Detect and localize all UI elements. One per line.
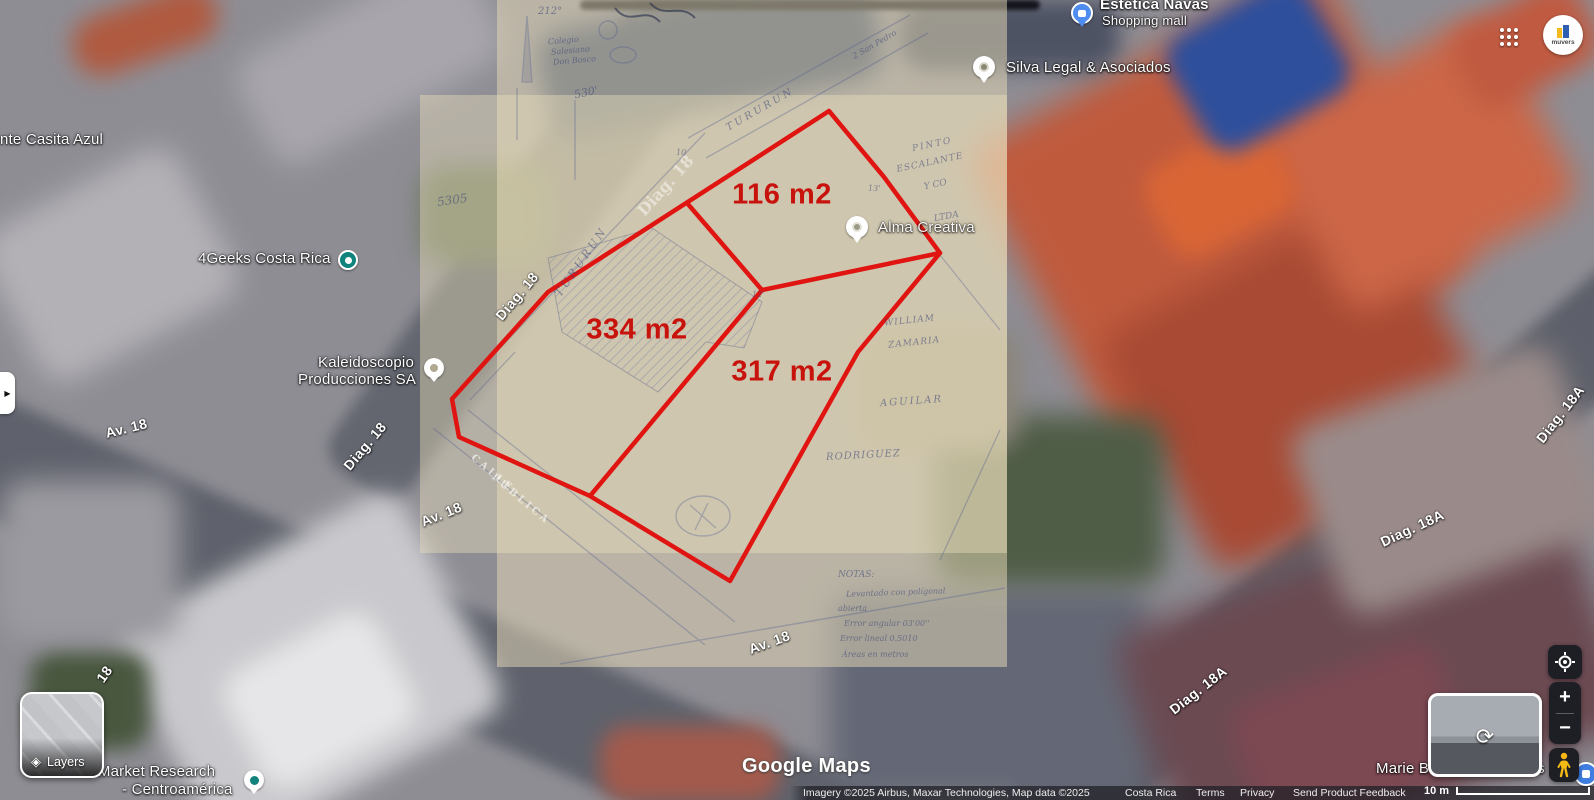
layers-icon: ◈: [31, 754, 41, 770]
place-label-estetica-navas[interactable]: Estética Navas: [1100, 0, 1209, 13]
google-maps-watermark: Google Maps: [742, 755, 871, 778]
alma-creativa-pin-icon[interactable]: [846, 216, 868, 238]
footer-link-privacy[interactable]: Privacy: [1240, 787, 1274, 799]
google-apps-grid-icon[interactable]: [1498, 26, 1520, 48]
google-maps-satellite-view: 116 m2 334 m2 317 m2 212° Colegio Salesi…: [0, 0, 1594, 800]
plan-note: 12': [752, 290, 764, 299]
place-label-producciones[interactable]: Producciones SA: [298, 371, 416, 388]
account-avatar[interactable]: muvers: [1543, 15, 1583, 55]
street-view-thumbnail[interactable]: ⟳: [1428, 693, 1542, 777]
zoom-out-button[interactable]: −: [1549, 714, 1581, 744]
pegman-icon: [1557, 752, 1571, 778]
kaleidoscopio-pin-icon[interactable]: [424, 358, 444, 378]
footer-link-region[interactable]: Costa Rica: [1125, 787, 1176, 799]
plan-note: 212°: [538, 6, 562, 17]
place-label-market-research[interactable]: o Market Research: [85, 763, 215, 780]
place-label-centroamerica[interactable]: - Centroamérica: [122, 781, 233, 798]
parcel-boundary-svg: [0, 0, 1594, 800]
plan-note: Áreas en metros: [842, 650, 908, 659]
footer-link-feedback[interactable]: Send Product Feedback: [1293, 787, 1406, 799]
place-label-alma-creativa[interactable]: Alma Creativa: [878, 219, 975, 236]
scale-label: 10 m: [1424, 785, 1449, 797]
zoom-in-button[interactable]: +: [1549, 683, 1581, 713]
place-label-casita-azul[interactable]: nte Casita Azul: [0, 131, 103, 148]
place-label-kaleidoscopio[interactable]: Kaleidoscopio: [318, 354, 414, 371]
avatar-label: muvers: [1551, 39, 1574, 46]
side-panel-expand-tab[interactable]: ▶: [0, 372, 15, 414]
place-label-silva-legal[interactable]: Silva Legal & Asociados: [1006, 59, 1171, 76]
place-sublabel-shopping-mall[interactable]: Shopping mall: [1102, 13, 1187, 28]
shopping-mall-pin-icon[interactable]: [1071, 2, 1093, 24]
market-research-pin-icon[interactable]: [244, 770, 264, 790]
silva-legal-pin-icon[interactable]: [973, 56, 995, 78]
my-location-icon: [1554, 651, 1576, 673]
parcel-area-label-116: 116 m2: [732, 179, 832, 212]
imagery-attribution: Imagery ©2025 Airbus, Maxar Technologies…: [803, 787, 1090, 799]
plan-note: 10: [676, 148, 686, 157]
pegman-button[interactable]: [1549, 748, 1579, 782]
chevron-right-icon: ▶: [4, 389, 10, 398]
muvers-logo-icon: [1555, 24, 1571, 38]
plan-note: 13': [868, 184, 880, 193]
layers-label: Layers: [47, 755, 85, 769]
plan-note: Error lineal 0.5010: [840, 634, 918, 643]
zoom-control: + −: [1549, 682, 1581, 744]
parcel-area-label-317: 317 m2: [731, 356, 832, 389]
plan-note: Error angular 03'00'': [844, 619, 930, 628]
4geeks-pin-icon[interactable]: [338, 250, 358, 270]
parcel-area-label-334: 334 m2: [586, 314, 687, 347]
my-location-button[interactable]: [1548, 645, 1582, 679]
scale-bar: [1456, 787, 1590, 795]
footer-link-terms[interactable]: Terms: [1196, 787, 1225, 799]
plan-ink-scribbles: [615, 3, 695, 22]
place-label-4geeks[interactable]: 4Geeks Costa Rica: [198, 250, 331, 267]
layers-button[interactable]: ◈ Layers: [20, 692, 104, 778]
rotate-view-icon: ⟳: [1476, 724, 1494, 750]
plan-note: abierta: [838, 604, 867, 613]
plan-note: NOTAS:: [838, 570, 874, 580]
